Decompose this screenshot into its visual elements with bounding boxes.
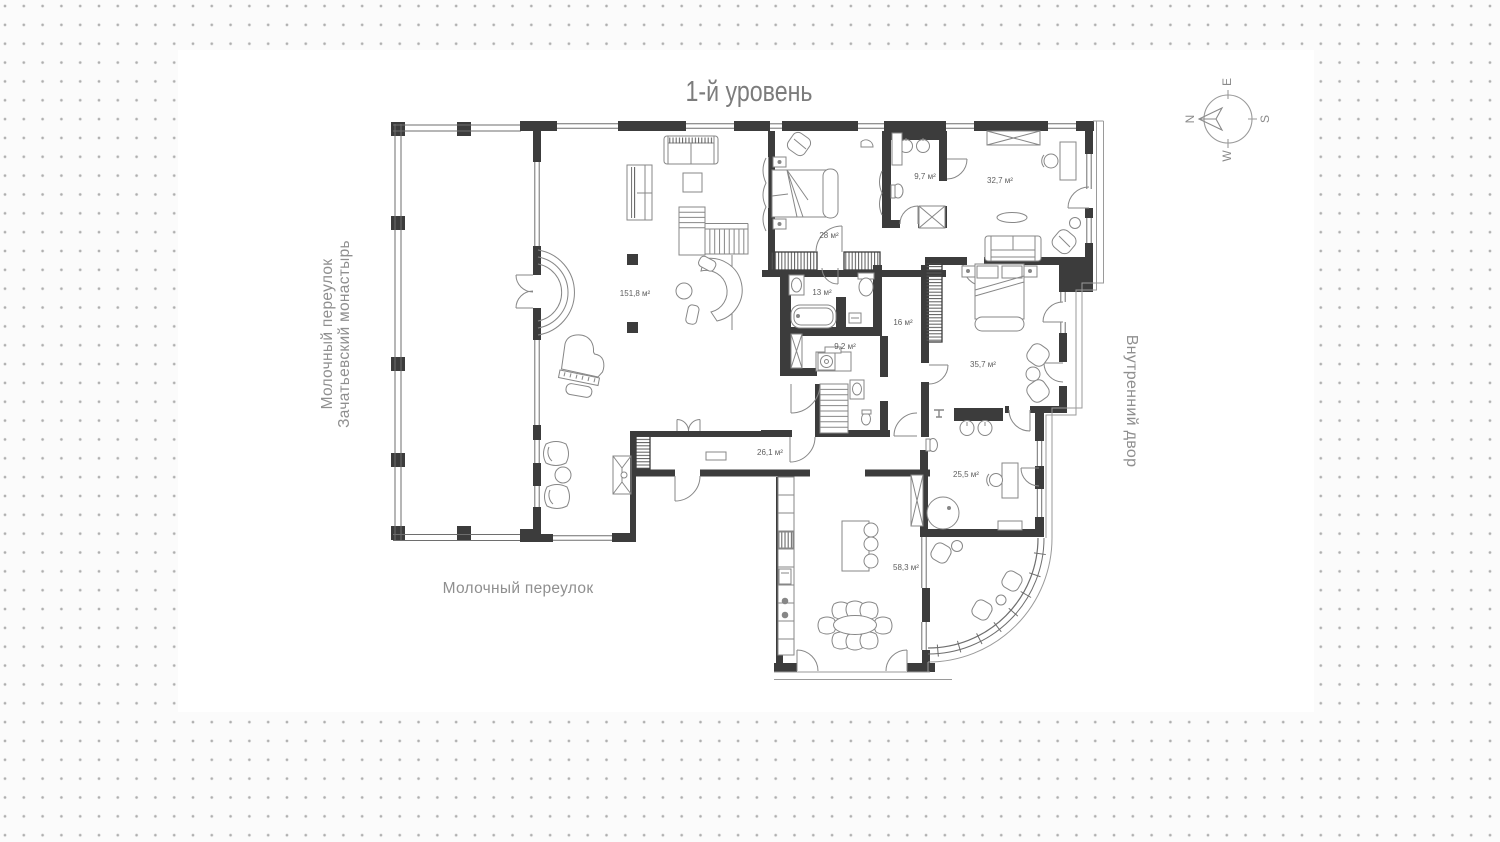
svg-text:9,7 м²: 9,7 м² xyxy=(914,172,936,181)
svg-text:25,5 м²: 25,5 м² xyxy=(953,470,979,479)
svg-text:26,1 м²: 26,1 м² xyxy=(757,448,783,457)
svg-text:S: S xyxy=(1258,115,1272,123)
svg-text:28 м²: 28 м² xyxy=(819,231,839,240)
svg-text:E: E xyxy=(1220,78,1234,86)
svg-text:16 м²: 16 м² xyxy=(893,318,913,327)
svg-text:58,3 м²: 58,3 м² xyxy=(893,563,919,572)
svg-text:151,8 м²: 151,8 м² xyxy=(620,289,651,298)
svg-text:N: N xyxy=(1183,115,1197,124)
svg-text:35,7 м²: 35,7 м² xyxy=(970,360,996,369)
svg-text:32,7 м²: 32,7 м² xyxy=(987,176,1013,185)
svg-text:W: W xyxy=(1220,150,1234,162)
svg-text:13 м²: 13 м² xyxy=(812,288,832,297)
svg-text:9,2 м²: 9,2 м² xyxy=(834,342,856,351)
